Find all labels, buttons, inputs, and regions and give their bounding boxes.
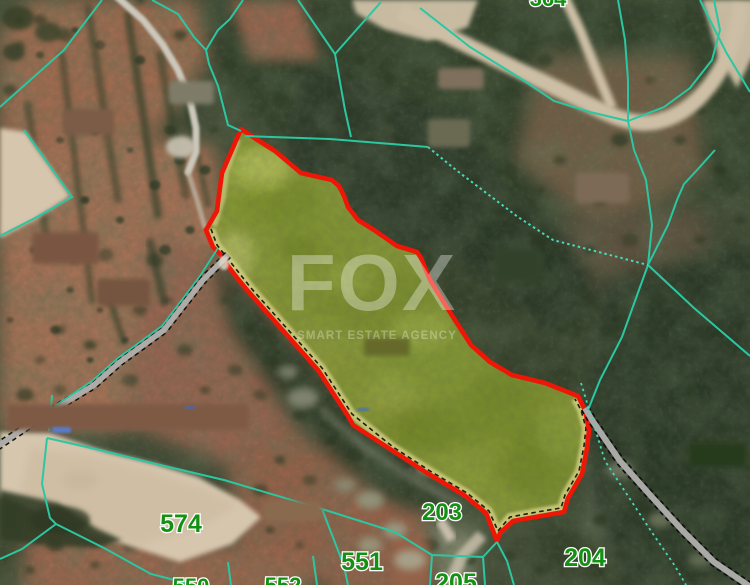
svg-text:205: 205 <box>435 569 477 585</box>
svg-text:550: 550 <box>173 574 210 585</box>
svg-text:SMART ESTATE AGENCY: SMART ESTATE AGENCY <box>297 330 457 342</box>
svg-text:552: 552 <box>265 573 302 585</box>
svg-text:364: 364 <box>530 0 567 11</box>
svg-text:574: 574 <box>160 510 202 538</box>
svg-text:203: 203 <box>422 499 462 526</box>
svg-text:FOX: FOX <box>287 238 457 327</box>
svg-text:204: 204 <box>564 544 606 572</box>
svg-text:551: 551 <box>341 548 383 576</box>
